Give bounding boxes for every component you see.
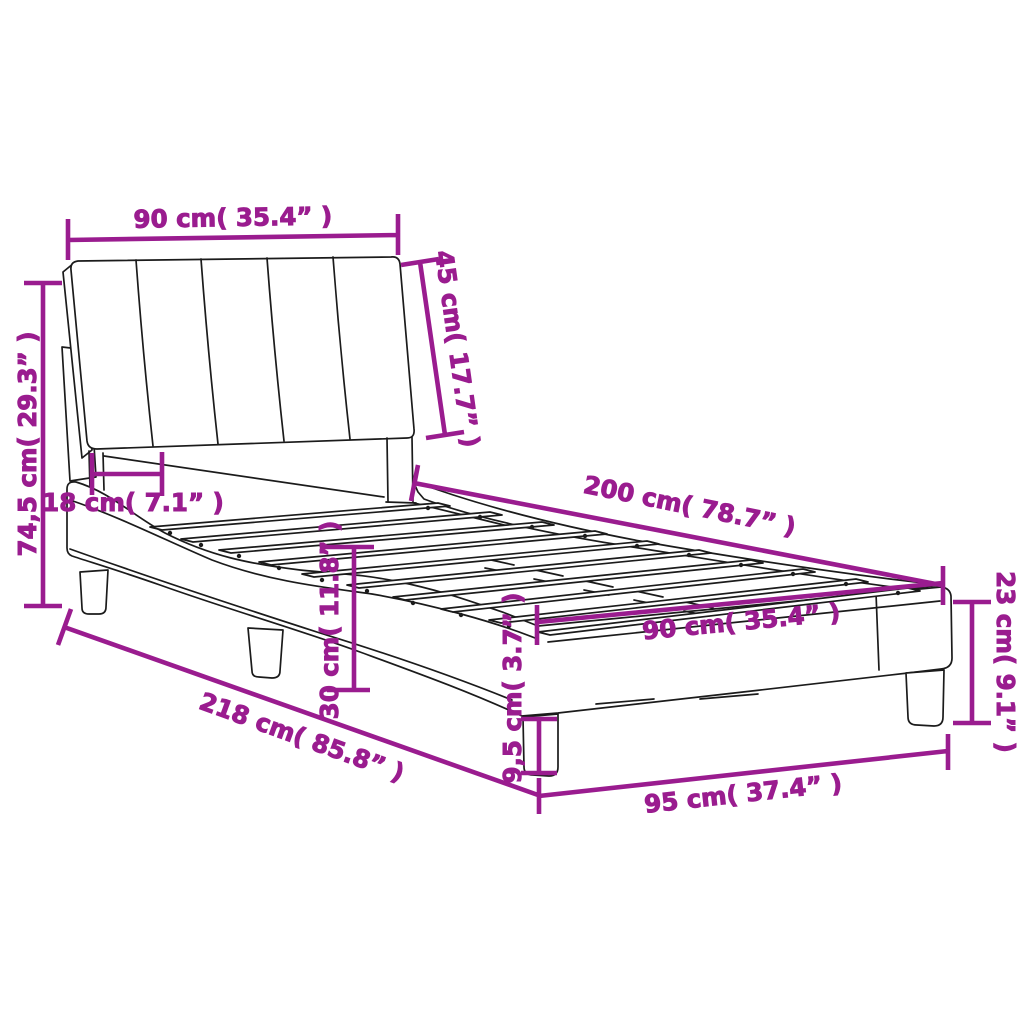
dim-headboard-width: 90 cm( 35.4” ) xyxy=(68,201,398,260)
dim-total-height-label: 74,5 cm( 29.3” ) xyxy=(13,331,42,556)
dim-foot-end-height-label: 23 cm( 9.1” ) xyxy=(991,571,1020,753)
leg-mid-left xyxy=(248,628,283,678)
dim-headboard-depth-label: 18 cm( 7.1” ) xyxy=(42,488,224,517)
headboard-cushion xyxy=(71,257,414,449)
dim-headboard-width-label: 90 cm( 35.4” ) xyxy=(133,201,332,233)
dim-frame-height-label: 30 cm( 11.8” ) xyxy=(315,521,344,720)
dim-base-width: 95 cm( 37.4” ) xyxy=(539,734,948,819)
dim-leg-height-label: 9,5 cm( 3.7” ) xyxy=(498,593,527,784)
leg-foot-far xyxy=(906,670,944,726)
slat xyxy=(219,522,554,553)
dimension-diagram: 90 cm( 35.4” ) 45 cm( 17.7” ) 74,5 cm( 2… xyxy=(0,0,1024,1024)
dim-bed-length-label: 200 cm( 78.7” ) xyxy=(581,470,798,541)
dim-total-height: 74,5 cm( 29.3” ) xyxy=(13,283,62,606)
leg-head-left xyxy=(80,570,108,614)
dim-foot-end-height: 23 cm( 9.1” ) xyxy=(953,571,1020,753)
bed-frame-diagram-canvas: 90 cm( 35.4” ) 45 cm( 17.7” ) 74,5 cm( 2… xyxy=(0,0,1024,1024)
dim-headboard-height-label: 45 cm( 17.7” ) xyxy=(429,248,485,449)
